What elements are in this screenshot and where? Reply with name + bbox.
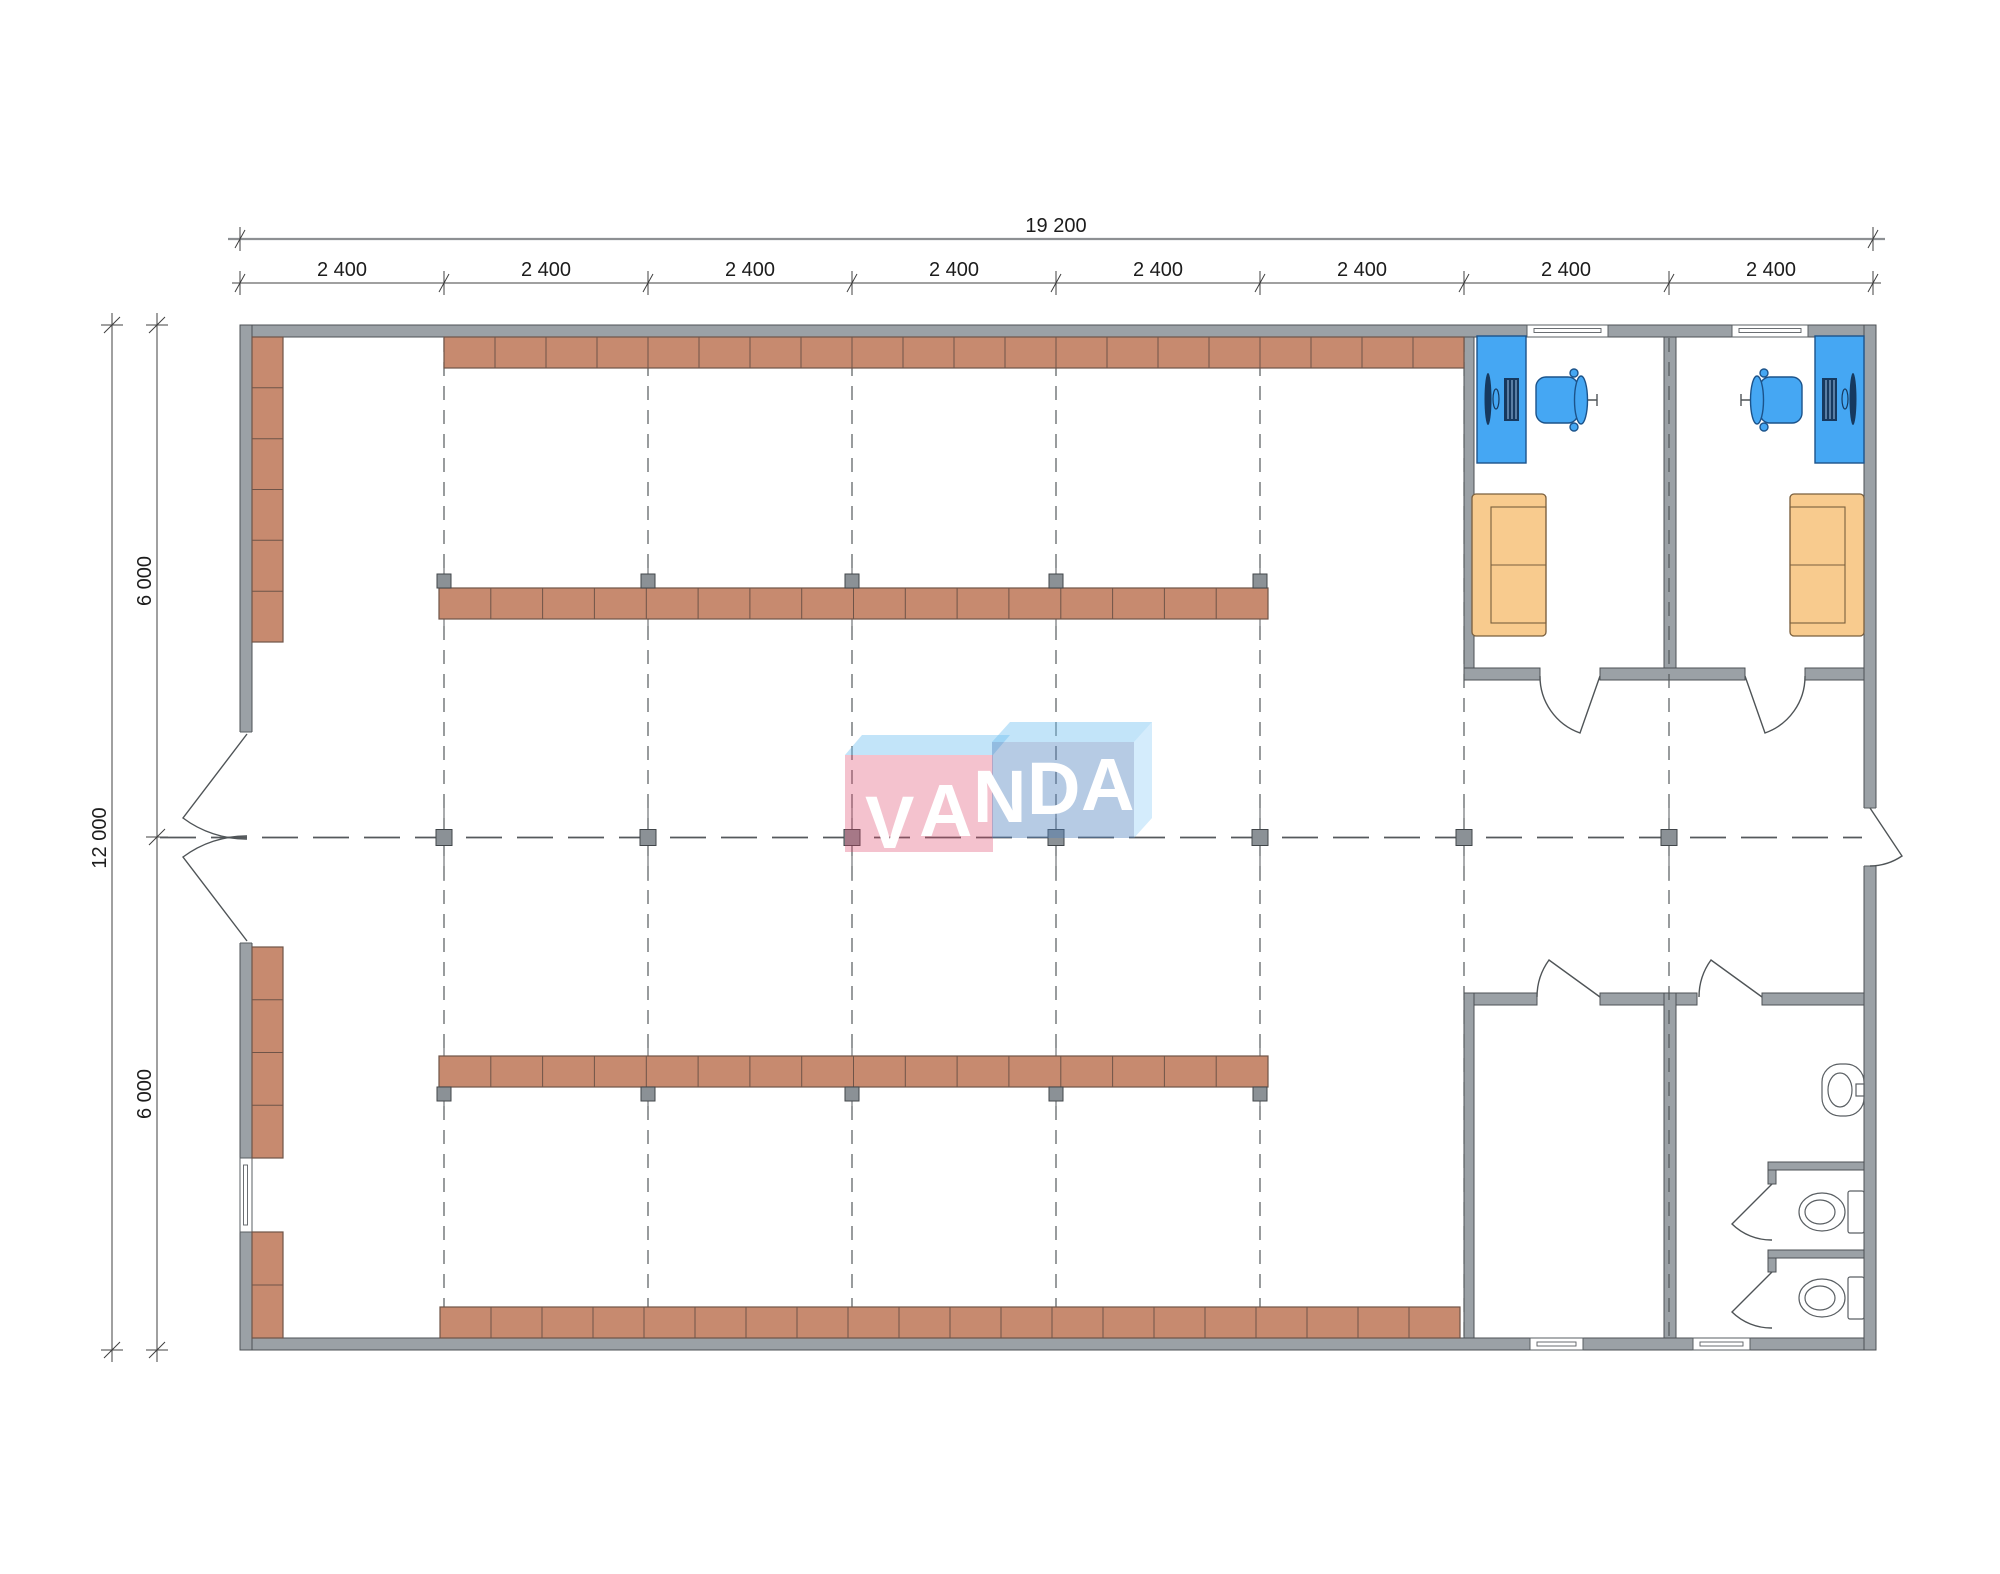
dim-label-bay-1: 2 400 xyxy=(317,259,367,281)
wall-wc-west xyxy=(1664,993,1676,1338)
column xyxy=(640,830,656,846)
office2-desk xyxy=(1815,336,1864,463)
dim-label-bay-2: 2 400 xyxy=(521,259,571,281)
column xyxy=(437,1087,451,1101)
wall-stall-partition-2 xyxy=(1768,1250,1864,1258)
wall-stall-partition-1 xyxy=(1768,1162,1864,1170)
shelf-unit xyxy=(252,337,283,642)
wall-office-partition xyxy=(1664,337,1676,680)
toilet-2 xyxy=(1799,1277,1864,1319)
wall-office-south-b xyxy=(1600,668,1745,680)
dim-label-bay-4: 2 400 xyxy=(929,259,979,281)
dim-label-bay-6: 2 400 xyxy=(1337,259,1387,281)
monitor-icon xyxy=(1485,373,1492,425)
window-wc xyxy=(1693,1338,1750,1350)
window-left-wall xyxy=(240,1158,252,1232)
window-office-2 xyxy=(1732,325,1808,337)
column xyxy=(1049,1087,1063,1101)
office1-desk xyxy=(1477,336,1526,463)
wc-door-leaf xyxy=(1699,960,1762,997)
column xyxy=(1661,830,1677,846)
dim-label-bay-7: 2 400 xyxy=(1541,259,1591,281)
logo-pink-top-face xyxy=(845,735,1010,755)
entrance-door-leaf-top xyxy=(183,734,247,839)
dim-label-bay-8: 2 400 xyxy=(1746,259,1796,281)
sanitary xyxy=(1799,1064,1864,1319)
sink xyxy=(1822,1064,1864,1116)
dim-label-total-width: 19 200 xyxy=(1025,215,1086,237)
floor-plan-drawing: 19 200 2 400 2 400 2 400 2 400 2 400 2 4… xyxy=(0,0,2000,1574)
column xyxy=(1456,830,1472,846)
column xyxy=(1253,574,1267,588)
column xyxy=(845,1087,859,1101)
column xyxy=(436,830,452,846)
dim-label-bay-3: 2 400 xyxy=(725,259,775,281)
wall-office-south-c xyxy=(1805,668,1864,680)
window-office-1 xyxy=(1527,325,1608,337)
dim-label-total-height: 12 000 xyxy=(89,807,111,868)
wall-stall-stub-2 xyxy=(1768,1258,1776,1272)
column xyxy=(641,1087,655,1101)
shelf-unit xyxy=(439,588,1268,619)
office1-door-leaf xyxy=(1540,676,1600,733)
office2-sofa xyxy=(1790,494,1864,636)
dim-label-lower-half: 6 000 xyxy=(134,1069,156,1119)
shelf-unit xyxy=(440,1307,1460,1338)
shelf-unit xyxy=(444,337,1464,368)
window-storeroom xyxy=(1530,1338,1583,1350)
wall-exterior-bottom xyxy=(240,1338,1876,1350)
storeroom-door-leaf xyxy=(1537,960,1600,997)
column xyxy=(1253,1087,1267,1101)
column xyxy=(845,574,859,588)
office2-door-leaf xyxy=(1745,676,1805,733)
wall-exterior-top xyxy=(240,325,1876,337)
shelf-unit xyxy=(252,947,283,1158)
column xyxy=(1049,574,1063,588)
column xyxy=(1252,830,1268,846)
logo-blue-side-face xyxy=(1134,722,1152,838)
column xyxy=(641,574,655,588)
dim-label-upper-half: 6 000 xyxy=(134,556,156,606)
side-exit-opening xyxy=(1863,808,1877,866)
floor-plan-canvas: 19 200 2 400 2 400 2 400 2 400 2 400 2 4… xyxy=(0,0,2000,1574)
office1-chair xyxy=(1536,369,1597,431)
shelf-unit xyxy=(439,1056,1268,1087)
wall-office-south-a xyxy=(1464,668,1540,680)
dim-label-bay-5: 2 400 xyxy=(1133,259,1183,281)
toilet-1 xyxy=(1799,1191,1864,1233)
office2-chair xyxy=(1741,369,1802,431)
stall2-door-leaf xyxy=(1732,1272,1772,1328)
shelf-unit xyxy=(252,1232,283,1338)
entrance-door-leaf-bottom xyxy=(183,836,247,941)
monitor-icon xyxy=(1850,373,1857,425)
office1-sofa xyxy=(1472,494,1546,636)
logo-watermark: VANDA xyxy=(845,722,1152,864)
wall-stall-stub-1 xyxy=(1768,1170,1776,1184)
stall1-door-leaf xyxy=(1732,1184,1772,1240)
logo-blue-top-face xyxy=(992,722,1152,742)
wall-storeroom-west xyxy=(1464,993,1474,1338)
column xyxy=(437,574,451,588)
wall-backroom-north-c xyxy=(1762,993,1864,1005)
wall-backroom-north-b xyxy=(1600,993,1697,1005)
wall-backroom-north-a xyxy=(1464,993,1537,1005)
